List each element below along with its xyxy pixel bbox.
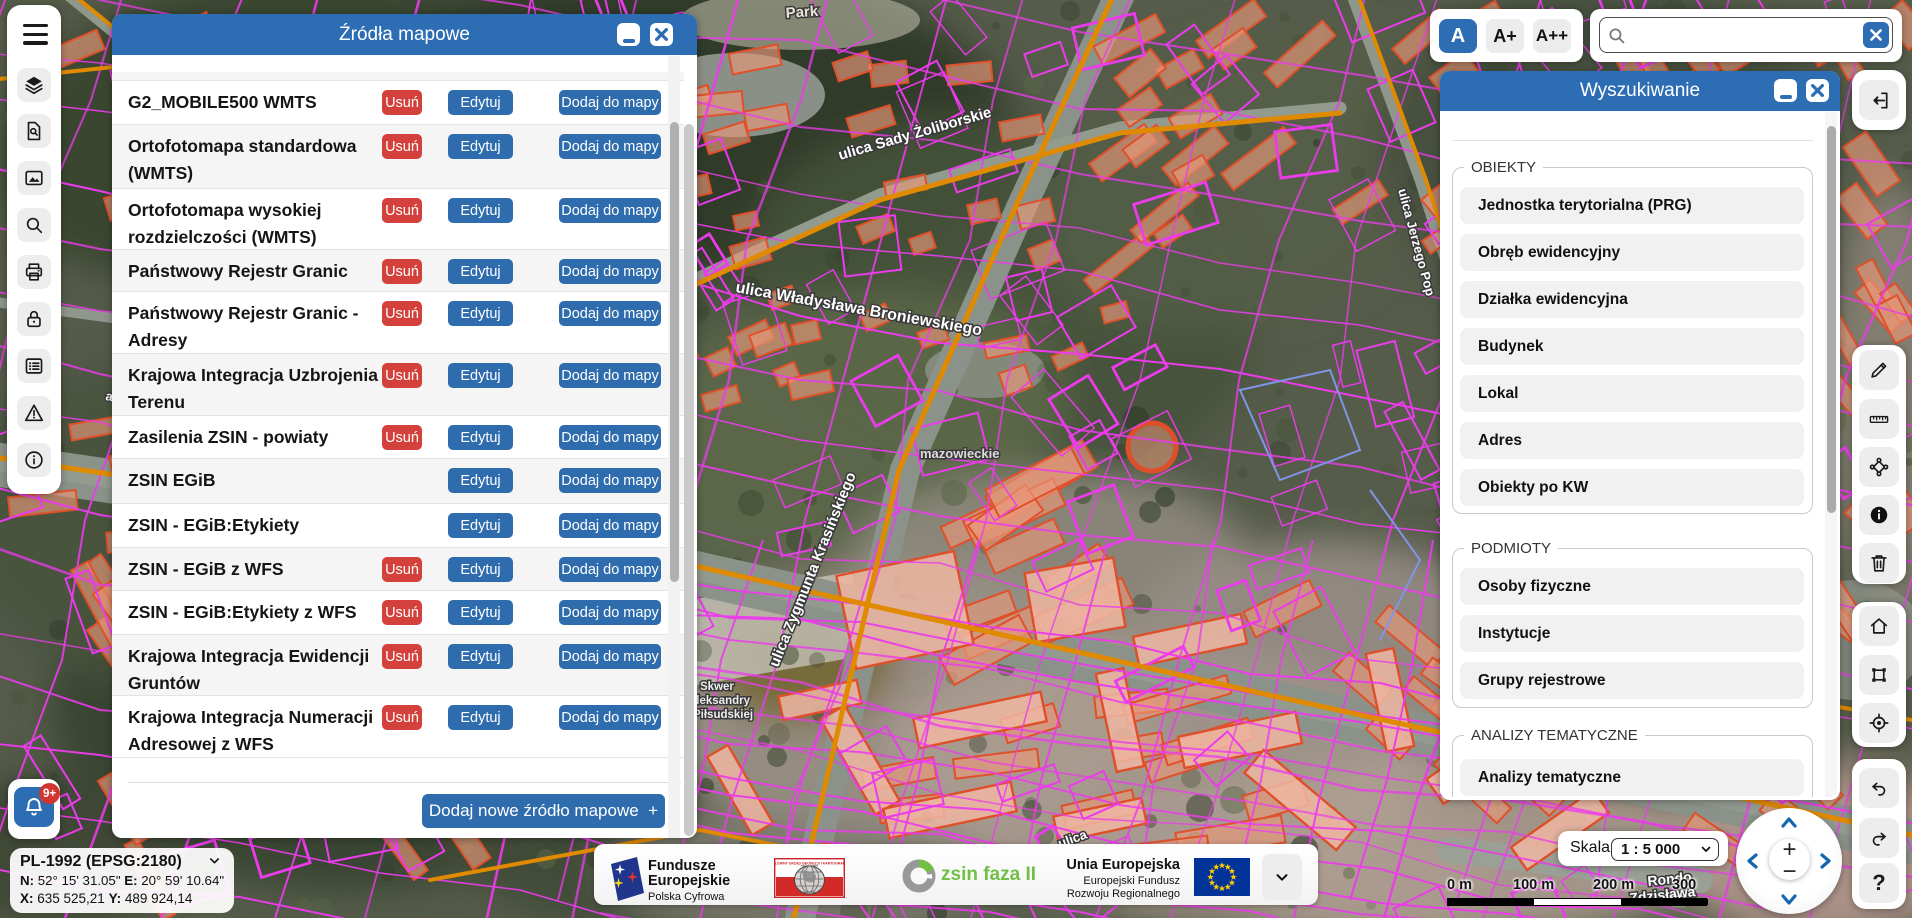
svg-text:Park: Park xyxy=(785,3,819,22)
svg-text:Aleksandry: Aleksandry xyxy=(688,695,751,707)
svg-text:Skwer: Skwer xyxy=(700,681,734,693)
svg-text:Piłsudskiej: Piłsudskiej xyxy=(693,709,753,721)
svg-text:mazowieckie: mazowieckie xyxy=(920,446,1000,461)
svg-text:GŁÓWNY URZĄD GEODEZJI I KARTOG: GŁÓWNY URZĄD GEODEZJI I KARTOGRAFII xyxy=(774,861,845,866)
